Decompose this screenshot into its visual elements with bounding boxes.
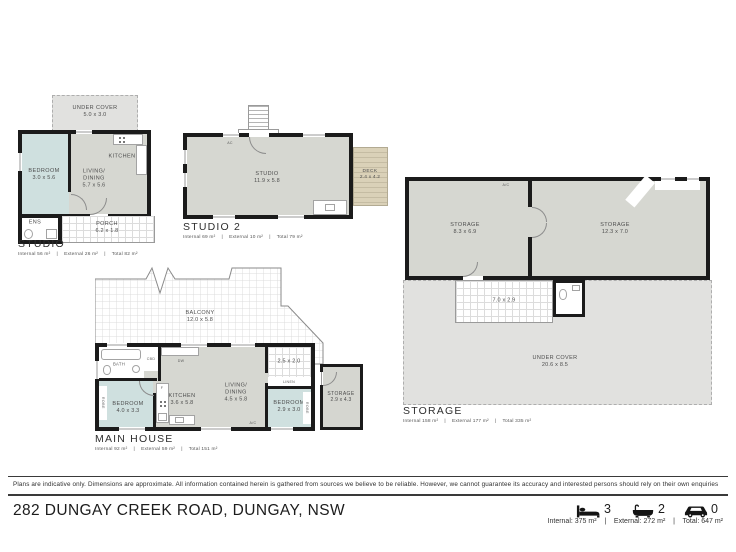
oven-icon [158,413,167,421]
footer-mid-rule [8,494,728,496]
storage-porch-label: 7.0 x 2.9 [493,298,516,305]
main-house-laundry-label: 2.5 x 2.0 [278,359,301,366]
studio-plan: UNDER COVER 5.0 x 3.0 KITCHEN BEDROOM 3.… [18,95,178,265]
mh-window-top-2 [231,343,255,347]
mh-window-left [95,361,99,379]
studio-window-top [76,130,92,134]
mh-window-bottom-2 [201,427,231,431]
studio2-stats: Internal 69 m² | External 10 m² | Total … [183,235,303,240]
studio2-window-left-1 [183,150,187,164]
basin-icon [572,285,580,291]
studio-kitchen-counter [113,134,143,145]
studio2-window-left-2 [183,173,187,187]
mh-window-top-1 [107,343,127,347]
fridge-label: F [161,386,164,390]
storage-room1-label: STORAGE 8.3 x 6.9 [450,222,480,236]
disclaimer-text: Plans are indicative only. Dimensions ar… [13,481,718,488]
mh-window-bottom-3 [271,427,293,431]
studio-kitchen-label: KITCHEN [109,154,136,161]
mh-balcony-door-gap [181,343,207,347]
sink-icon [325,204,335,211]
bedroom1-robe-label: ROBE [101,397,105,409]
studio2-window-top-left [223,133,239,137]
studio-living-label: LIVING/ DINING 5.7 x 5.6 [83,169,106,190]
studio-under-cover-label: UNDER COVER 5.0 x 3.0 [72,105,117,119]
basin-icon [132,365,140,373]
floor-plan-page: UNDER COVER 5.0 x 3.0 KITCHEN BEDROOM 3.… [0,0,736,552]
bed-count: 3 [604,502,611,516]
studio2-room-label: STUDIO 11.9 x 5.8 [254,171,280,185]
main-house-bedroom2-label: BEDROOM 2.9 x 3.0 [273,400,304,414]
main-house-storage-label: STORAGE 2.9 x 4.3 [327,391,354,404]
storage-stats: Internal 158 m² | External 177 m² | Tota… [403,419,531,424]
storage-divider-wall-bottom [528,237,532,276]
storage-under-cover-label: UNDER COVER 20.6 x 8.5 [532,355,577,369]
storage-door-gap-2 [687,177,699,181]
studio2-deck-label: DECK 2.4 x 4.2 [360,169,380,181]
studio-stats: Internal 56 m² | External 26 m² | Total … [18,252,138,257]
storage-title: STORAGE [403,405,463,417]
storage-door-gap-1 [661,177,675,181]
stove-icon [119,137,121,139]
main-house-plan: BALCONY 12.0 x 5.8 BATH CBD DW ROBE BEDR… [95,266,370,458]
main-house-title: MAIN HOUSE [95,433,174,445]
studio-title: STUDIO [18,238,65,250]
studio2-ac-label: AC [227,141,233,145]
studio2-window-top-right [303,133,325,137]
bathtub-icon [101,349,141,360]
footer-top-rule [8,476,728,477]
main-house-stats: Internal 92 m² | External 59 m² | Total … [95,447,218,452]
studio2-plan: STUDIO 11.9 x 5.8 AC DECK 2.4 x 4.2 STUD… [183,105,398,250]
main-house-living-label: LIVING/ DINING 4.5 x 5.8 [225,383,248,404]
main-house-bedroom1-label: BEDROOM 4.0 x 3.3 [112,401,143,415]
bedroom2-robe-label: ROBE [305,402,309,414]
studio2-window-bottom-2 [278,215,304,219]
studio-ens-label: ENS [29,220,42,227]
storage-corner-bench [655,181,700,190]
kitchen-top-counter [161,347,199,356]
studio-bedroom-label: BEDROOM 3.0 x 5.6 [28,168,59,182]
studio-porch-label: PORCH 6.2 x 1.8 [96,221,119,235]
main-house-balcony-label: BALCONY 12.0 x 5.8 [185,310,214,324]
mh-window-bottom-1 [119,427,145,431]
bed-icon [576,503,600,518]
storage-plan: A/C STORAGE 8.3 x 6.9 STORAGE 12.3 x 7.0… [403,177,718,429]
storage-wc [553,280,585,317]
studio-kitchen-side-counter [136,145,147,175]
sink-icon [175,417,184,423]
main-house-ac-label: A/C [250,421,257,425]
main-house-cbd-label: CBD [147,357,156,361]
bath-count: 2 [658,502,665,516]
main-house-bath-label: BATH [113,362,125,367]
storage-ac-label: A/C [503,183,510,187]
bath-icon [631,503,655,518]
main-house-dw-label: DW [178,359,185,363]
storage-room2-label: STORAGE 12.3 x 7.0 [600,222,630,236]
storage-divider-wall-top [528,181,532,207]
stairs-icon [248,105,269,131]
toilet-icon [559,289,567,300]
main-house-kitchen-label: KITCHEN 3.6 x 5.8 [169,393,196,407]
total-areas-text: Internal: 375 m² | External: 272 m² | To… [420,518,723,525]
car-count: 0 [711,502,718,516]
studio2-title: STUDIO 2 [183,221,241,233]
stove-icon [160,401,162,403]
studio-bedroom-wall [68,134,71,192]
studio-window-left [18,153,22,171]
car-icon [684,503,708,518]
property-address: 282 DUNGAY CREEK ROAD, DUNGAY, NSW [13,502,345,520]
studio2-window-bottom-1 [213,215,235,219]
main-house-linen-label: LINEN [283,380,295,384]
toilet-icon [103,365,111,375]
